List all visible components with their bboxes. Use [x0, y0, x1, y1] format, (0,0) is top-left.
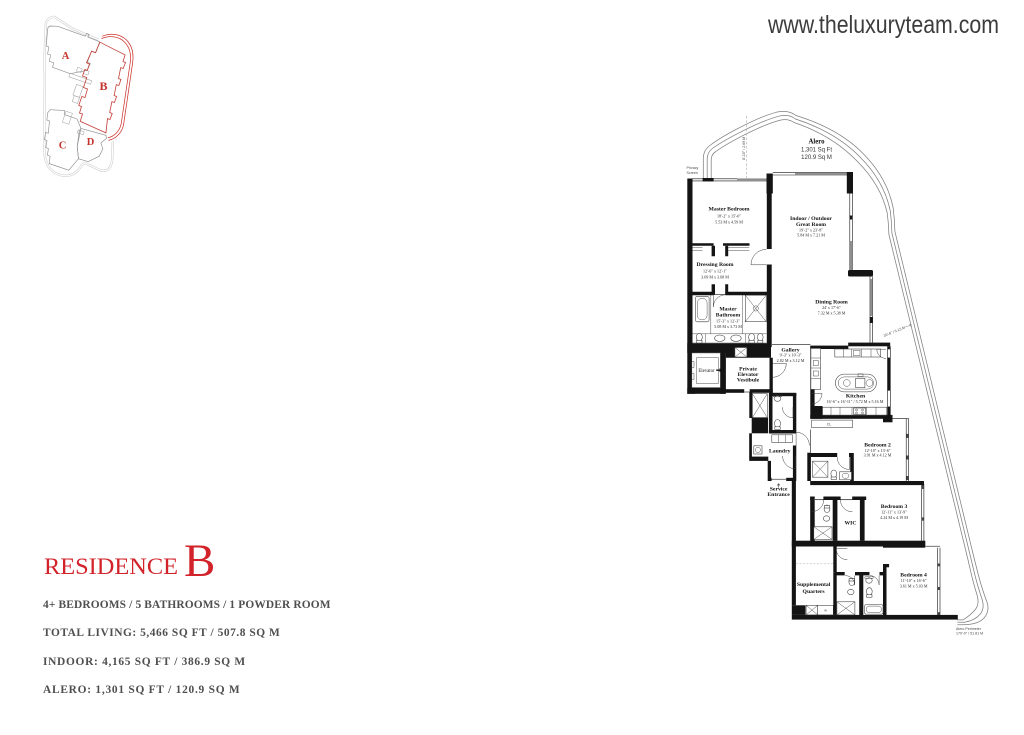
svg-text:www.theluxuryteam.com: www.theluxuryteam.com	[767, 11, 999, 39]
svg-text:4.24 M x 4.19 M: 4.24 M x 4.19 M	[880, 515, 908, 520]
svg-text:Supplemental: Supplemental	[797, 582, 831, 588]
svg-text:B: B	[99, 79, 107, 93]
svg-text:TOTAL LIVING: 5,466 SQ FT / 50: TOTAL LIVING: 5,466 SQ FT / 507.8 SQ M	[43, 627, 280, 639]
svg-text:1,301 Sq Ft: 1,301 Sq Ft	[801, 148, 832, 154]
svg-text:170'-0" / 51.81 M: 170'-0" / 51.81 M	[956, 632, 983, 636]
svg-text:15'-3" x 12'-3": 15'-3" x 12'-3"	[716, 319, 740, 324]
svg-text:Vestibule: Vestibule	[737, 378, 760, 384]
svg-text:Dressing Room: Dressing Room	[696, 262, 733, 268]
svg-text:3.69 M x 3.68 M: 3.69 M x 3.68 M	[701, 275, 729, 280]
svg-text:Entrance: Entrance	[767, 492, 790, 498]
svg-text:24' x 17'-6": 24' x 17'-6"	[822, 305, 841, 310]
svg-text:5.08 M x 3.73 M: 5.08 M x 3.73 M	[714, 324, 742, 329]
svg-text:120.9 Sq M: 120.9 Sq M	[801, 155, 832, 161]
svg-text:2.82 M x 3.12 M: 2.82 M x 3.12 M	[777, 358, 805, 363]
svg-text:RESIDENCE: RESIDENCE	[44, 554, 178, 579]
svg-text:16'-6" x 16'-11" / 5.72 M x 5.: 16'-6" x 16'-11" / 5.72 M x 5.16 M	[827, 399, 884, 404]
svg-text:Alero Perimeter: Alero Perimeter	[956, 627, 982, 631]
svg-text:Alero: Alero	[808, 139, 825, 146]
svg-text:12'-6" x 12'-1": 12'-6" x 12'-1"	[703, 269, 727, 274]
svg-text:w: w	[824, 609, 827, 613]
svg-text:18'-2" x 15'-0": 18'-2" x 15'-0"	[717, 214, 741, 219]
svg-text:8'-10" / 2.69 M: 8'-10" / 2.69 M	[742, 137, 746, 160]
svg-text:CL: CL	[827, 422, 832, 426]
svg-text:5.84 M x 7.21 M: 5.84 M x 7.21 M	[797, 233, 825, 238]
svg-text:Master Bedroom: Master Bedroom	[708, 207, 749, 213]
svg-text:C: C	[59, 141, 67, 152]
svg-text:7.32 M x 5.38 M: 7.32 M x 5.38 M	[818, 311, 846, 316]
svg-text:12'-11" x 13'-9": 12'-11" x 13'-9"	[881, 510, 907, 515]
svg-text:Privacy: Privacy	[687, 166, 699, 170]
svg-text:Screen: Screen	[687, 171, 698, 175]
svg-text:Elevator: Elevator	[698, 369, 715, 374]
svg-text:5.53 M x 4.59 M: 5.53 M x 4.59 M	[715, 220, 743, 225]
svg-text:ALERO: 1,301 SQ FT / 120.9 SQ: ALERO: 1,301 SQ FT / 120.9 SQ M	[43, 684, 240, 696]
svg-text:Quarters: Quarters	[803, 589, 826, 595]
svg-text:3.61 M x 5.03 M: 3.61 M x 5.03 M	[900, 584, 928, 589]
svg-text:D: D	[87, 137, 95, 148]
svg-text:11'-10" x 16'-6": 11'-10" x 16'-6"	[901, 578, 927, 583]
svg-text:Laundry: Laundry	[769, 449, 791, 455]
svg-text:B: B	[184, 535, 215, 587]
svg-text:WIC: WIC	[844, 521, 856, 527]
svg-text:A: A	[62, 51, 70, 62]
svg-text:4+ BEDROOMS / 5 BATHROOMS / 1: 4+ BEDROOMS / 5 BATHROOMS / 1 POWDER ROO…	[43, 599, 331, 611]
svg-text:INDOOR: 4,165 SQ FT / 386.9 SQ: INDOOR: 4,165 SQ FT / 386.9 SQ M	[43, 656, 246, 668]
svg-text:9'-3" x 10'-3": 9'-3" x 10'-3"	[780, 353, 802, 358]
svg-text:3.91 M x 4.12 M: 3.91 M x 4.12 M	[864, 452, 892, 457]
